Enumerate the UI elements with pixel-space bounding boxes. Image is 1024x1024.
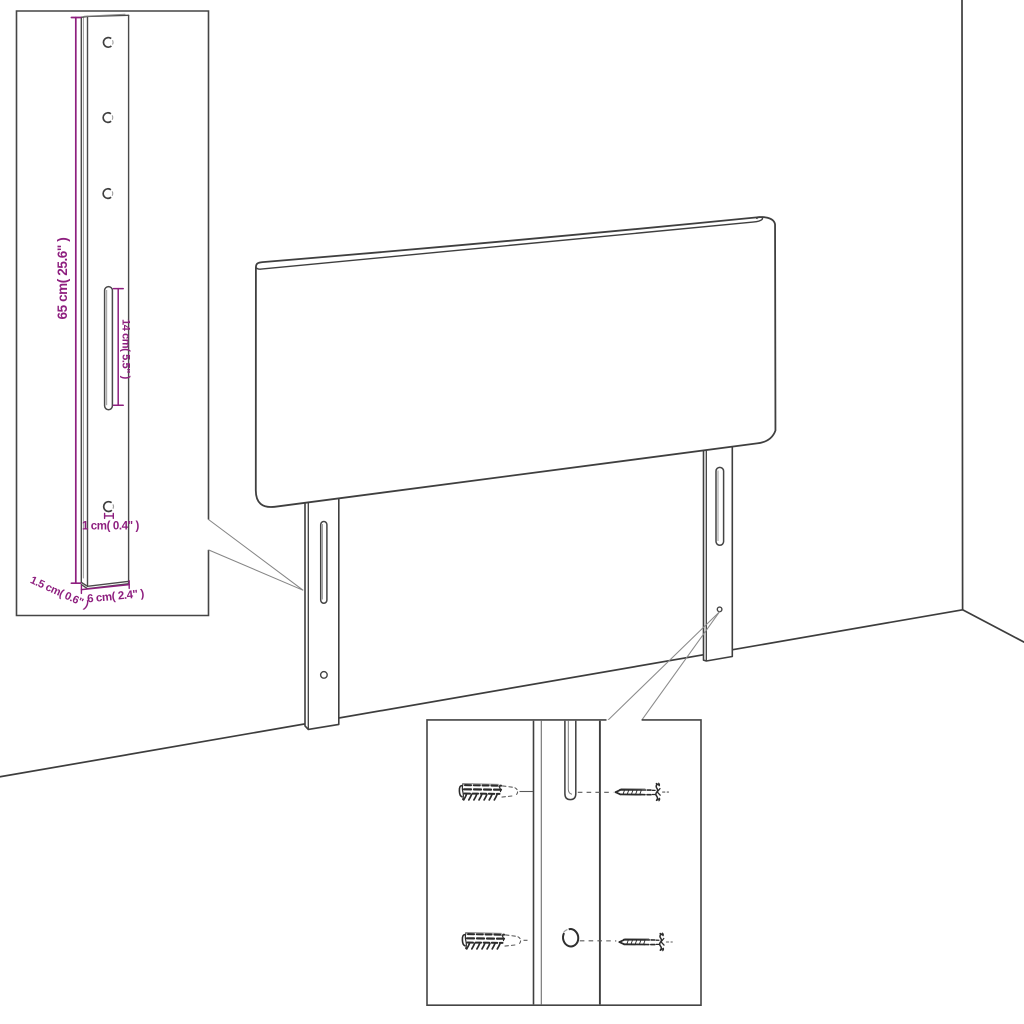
svg-text:65 cm( 25.6" ): 65 cm( 25.6" )	[55, 238, 70, 320]
svg-text:1 cm( 0.4" ): 1 cm( 0.4" )	[82, 521, 139, 533]
svg-text:14 cm( 5.5" ): 14 cm( 5.5" )	[119, 319, 131, 380]
